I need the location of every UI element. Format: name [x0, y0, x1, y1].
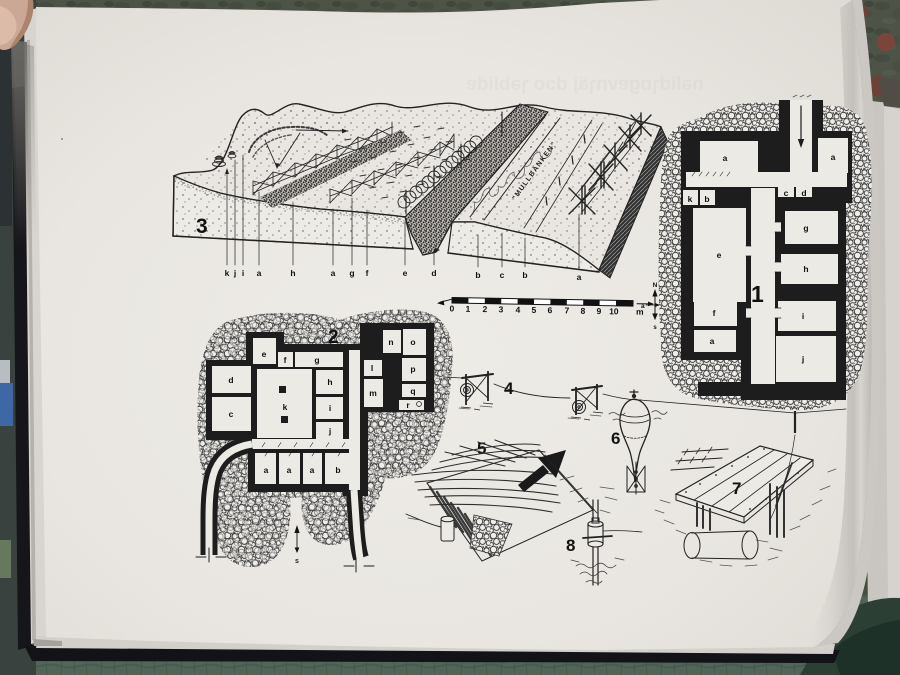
svg-text:5: 5	[531, 305, 536, 315]
svg-text:o: o	[410, 337, 415, 347]
svg-text:q: q	[410, 386, 415, 396]
svg-text:a: a	[264, 465, 269, 475]
svg-text:h: h	[290, 268, 295, 278]
svg-text:d: d	[801, 188, 806, 198]
svg-text:h: h	[327, 377, 332, 387]
svg-text:c: c	[784, 188, 789, 198]
svg-text:l: l	[371, 363, 373, 373]
svg-text:1: 1	[465, 304, 470, 314]
svg-text:8: 8	[580, 306, 585, 316]
svg-text:i: i	[242, 268, 244, 278]
svg-text:i: i	[329, 403, 331, 413]
svg-text:b: b	[704, 194, 709, 204]
svg-text:c: c	[229, 409, 234, 419]
svg-text:f: f	[366, 268, 369, 278]
svg-text:c: c	[500, 270, 505, 280]
svg-text:2: 2	[482, 304, 487, 314]
svg-text:d: d	[228, 375, 233, 385]
svg-text:a: a	[287, 465, 292, 475]
svg-text:a: a	[257, 268, 262, 278]
svg-text:a: a	[710, 336, 715, 346]
svg-text:a: a	[641, 303, 645, 310]
svg-text:p: p	[410, 364, 415, 374]
svg-text:a: a	[310, 465, 315, 475]
svg-text:g: g	[349, 268, 354, 278]
svg-text:b: b	[475, 270, 480, 280]
svg-text:i: i	[802, 311, 804, 321]
svg-text:e: e	[717, 250, 722, 260]
svg-text:k: k	[688, 194, 693, 204]
svg-text:3: 3	[498, 304, 503, 314]
svg-text:8: 8	[566, 536, 575, 555]
svg-text:e: e	[262, 349, 267, 359]
svg-text:9: 9	[596, 306, 601, 316]
svg-text:b: b	[335, 465, 340, 475]
svg-text:e: e	[403, 268, 408, 278]
svg-text:10: 10	[609, 306, 619, 316]
svg-text:k: k	[283, 402, 288, 412]
svg-text:m: m	[369, 388, 377, 398]
svg-text:j: j	[801, 354, 804, 364]
svg-text:3: 3	[196, 215, 208, 238]
svg-text:d: d	[431, 268, 436, 278]
svg-text:2: 2	[328, 327, 339, 348]
svg-text:6: 6	[611, 429, 620, 448]
svg-text:f: f	[284, 355, 287, 365]
svg-text:S: S	[295, 559, 299, 565]
svg-text:4: 4	[515, 305, 520, 315]
svg-text:0: 0	[449, 303, 454, 313]
svg-text:N: N	[653, 282, 658, 289]
svg-text:a: a	[723, 153, 728, 163]
svg-text:a: a	[831, 152, 836, 162]
svg-text:k: k	[225, 268, 230, 278]
svg-text:7: 7	[564, 305, 569, 315]
svg-text:1: 1	[751, 281, 764, 307]
svg-text:a: a	[331, 268, 336, 278]
svg-text:g: g	[314, 355, 319, 365]
svg-text:nəlidɿɒgɐvnɿäj dɔo ɿəblidɐ: nəlidɿɒgɐvnɿäj dɔo ɿəblidɐ	[466, 74, 704, 95]
svg-text:h: h	[803, 264, 808, 274]
svg-text:f: f	[713, 308, 716, 318]
svg-text:n: n	[388, 337, 393, 347]
svg-text:a: a	[577, 272, 582, 282]
svg-text:j: j	[233, 268, 236, 278]
svg-text:6: 6	[547, 305, 552, 315]
svg-text:b: b	[522, 270, 527, 280]
svg-text:g: g	[803, 223, 808, 233]
svg-text:j: j	[328, 426, 331, 436]
